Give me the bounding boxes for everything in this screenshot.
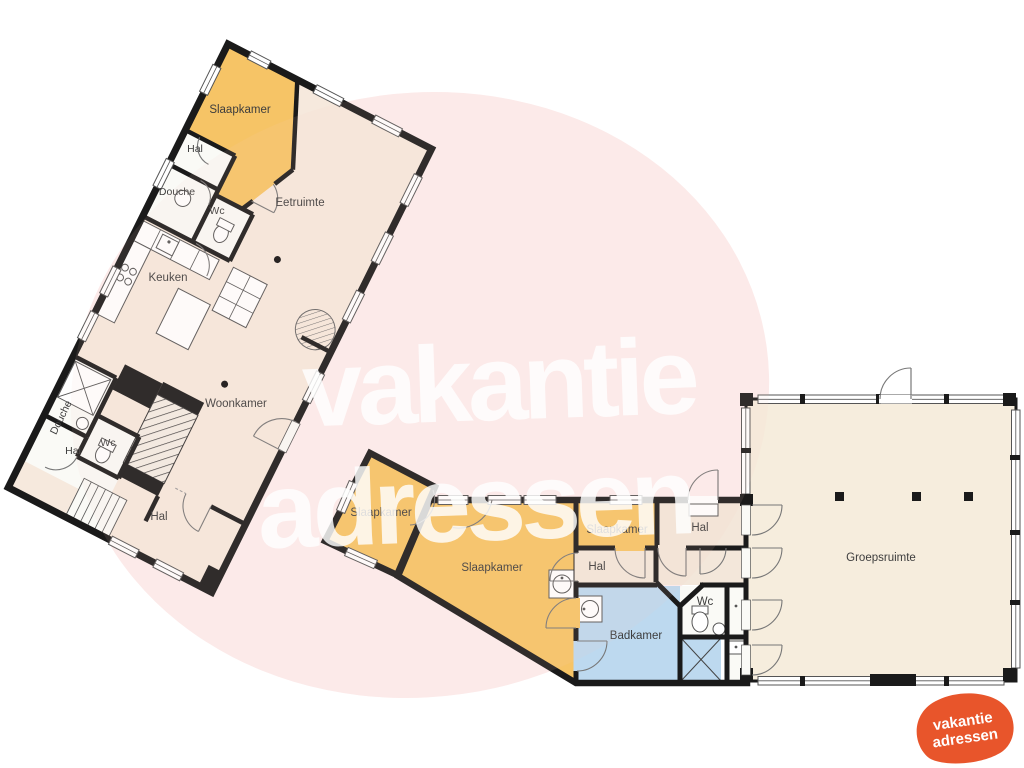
room-label-groepsruimte: Groepsruimte bbox=[846, 552, 916, 564]
floorplan-page: Slaapkamer Hal Douche Wc Eetruimte Keuke… bbox=[0, 0, 1024, 768]
room-label-hal-top: Hal bbox=[187, 143, 203, 155]
watermark-word-1: vakantie bbox=[300, 315, 698, 450]
floorplan-canvas: Slaapkamer Hal Douche Wc Eetruimte Keuke… bbox=[0, 0, 1024, 768]
room-groepsruimte-shape bbox=[746, 399, 1016, 681]
watermark-text: vakantie adressen bbox=[251, 315, 702, 571]
room-label-slaapkamer-left: Slaapkamer bbox=[209, 104, 271, 116]
watermark-word-2: adressen bbox=[255, 435, 693, 571]
brand-logo: vakantie adressen bbox=[917, 693, 1014, 763]
building-right bbox=[740, 368, 1020, 686]
room-label-wc-bottom-building: Wc bbox=[697, 596, 714, 608]
